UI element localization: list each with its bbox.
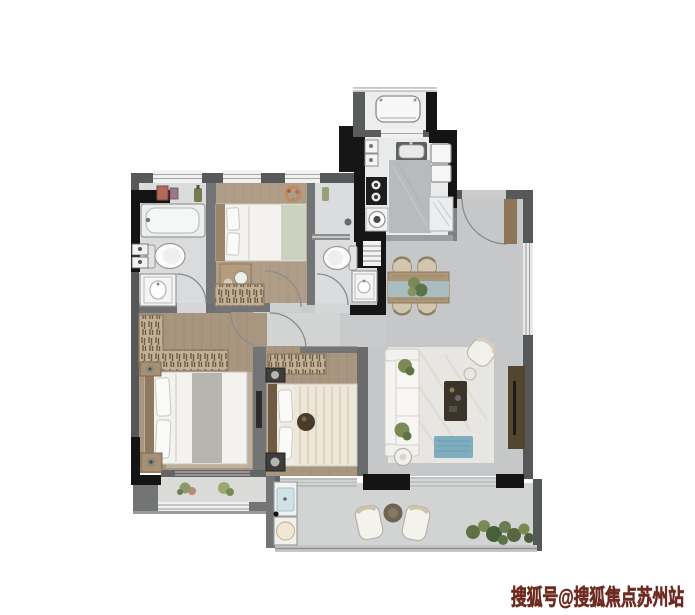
svg-text:搜狐号@搜狐焦点苏州站: 搜狐号@搜狐焦点苏州站 [511,585,684,610]
